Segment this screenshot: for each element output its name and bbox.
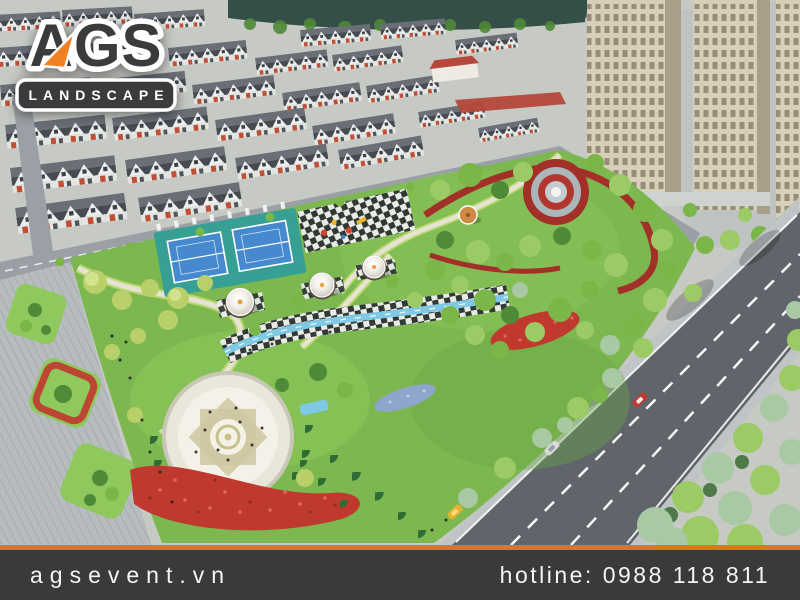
hotline-text: hotline: 0988 118 811 xyxy=(500,562,770,589)
tennis-court xyxy=(167,232,227,283)
median-tree xyxy=(684,284,702,302)
tower xyxy=(776,0,800,228)
hotline-number: 0988 118 811 xyxy=(603,562,770,588)
logo-text: AGS xyxy=(29,12,162,79)
hotline-label: hotline: xyxy=(500,562,594,588)
footer-bar: agsevent.vn hotline: 0988 118 811 xyxy=(0,545,800,600)
ags-landscape-logo: AGS LANDSCAPE xyxy=(10,6,182,124)
logo-tagline: LANDSCAPE xyxy=(28,87,169,103)
website-text: agsevent.vn xyxy=(30,562,231,589)
tennis-court xyxy=(232,221,292,272)
promo-image: AGS LANDSCAPE agsevent.vn hotline: 0988 … xyxy=(0,0,800,600)
tower xyxy=(693,0,770,214)
fountain xyxy=(523,159,589,225)
